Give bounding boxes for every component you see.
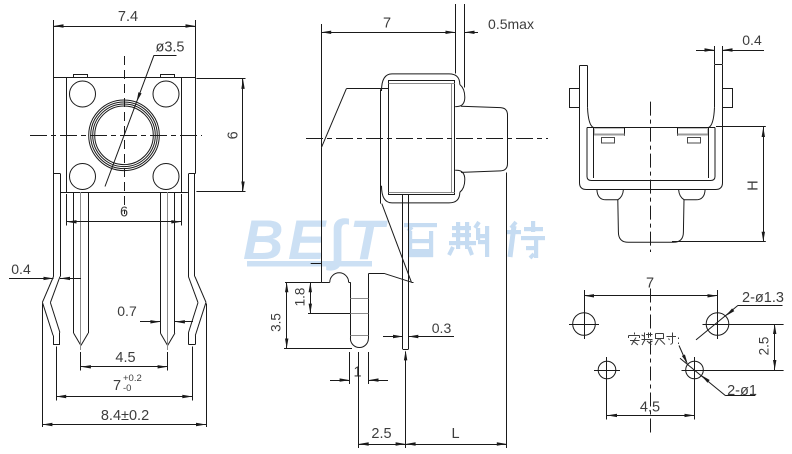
svg-text:0.3: 0.3 (432, 320, 452, 336)
svg-text:L: L (451, 426, 459, 442)
svg-text:4.5: 4.5 (115, 350, 135, 366)
svg-text:H: H (746, 180, 762, 190)
svg-text:7.4: 7.4 (118, 9, 138, 25)
svg-text:6: 6 (226, 131, 242, 139)
svg-text:2-ø1: 2-ø1 (727, 383, 757, 399)
svg-text:0.4: 0.4 (742, 32, 762, 48)
svg-text:4.5: 4.5 (640, 400, 660, 416)
svg-text:7: 7 (383, 16, 391, 32)
svg-text:-0: -0 (123, 383, 131, 394)
svg-text:0.7: 0.7 (117, 303, 137, 319)
svg-text:3.5: 3.5 (269, 313, 284, 332)
svg-text:8.4±0.2: 8.4±0.2 (101, 408, 149, 424)
svg-text:7: 7 (113, 378, 121, 394)
svg-text:2-ø1.3: 2-ø1.3 (742, 290, 784, 306)
svg-text:2.5: 2.5 (757, 337, 772, 356)
svg-text:6: 6 (120, 205, 128, 221)
svg-text:1: 1 (353, 365, 361, 381)
svg-text:2.5: 2.5 (371, 426, 391, 442)
svg-text:0.4: 0.4 (11, 261, 31, 277)
svg-text:ø3.5: ø3.5 (155, 40, 184, 56)
svg-text:0.5max: 0.5max (488, 16, 534, 32)
svg-text:1.8: 1.8 (293, 288, 308, 307)
